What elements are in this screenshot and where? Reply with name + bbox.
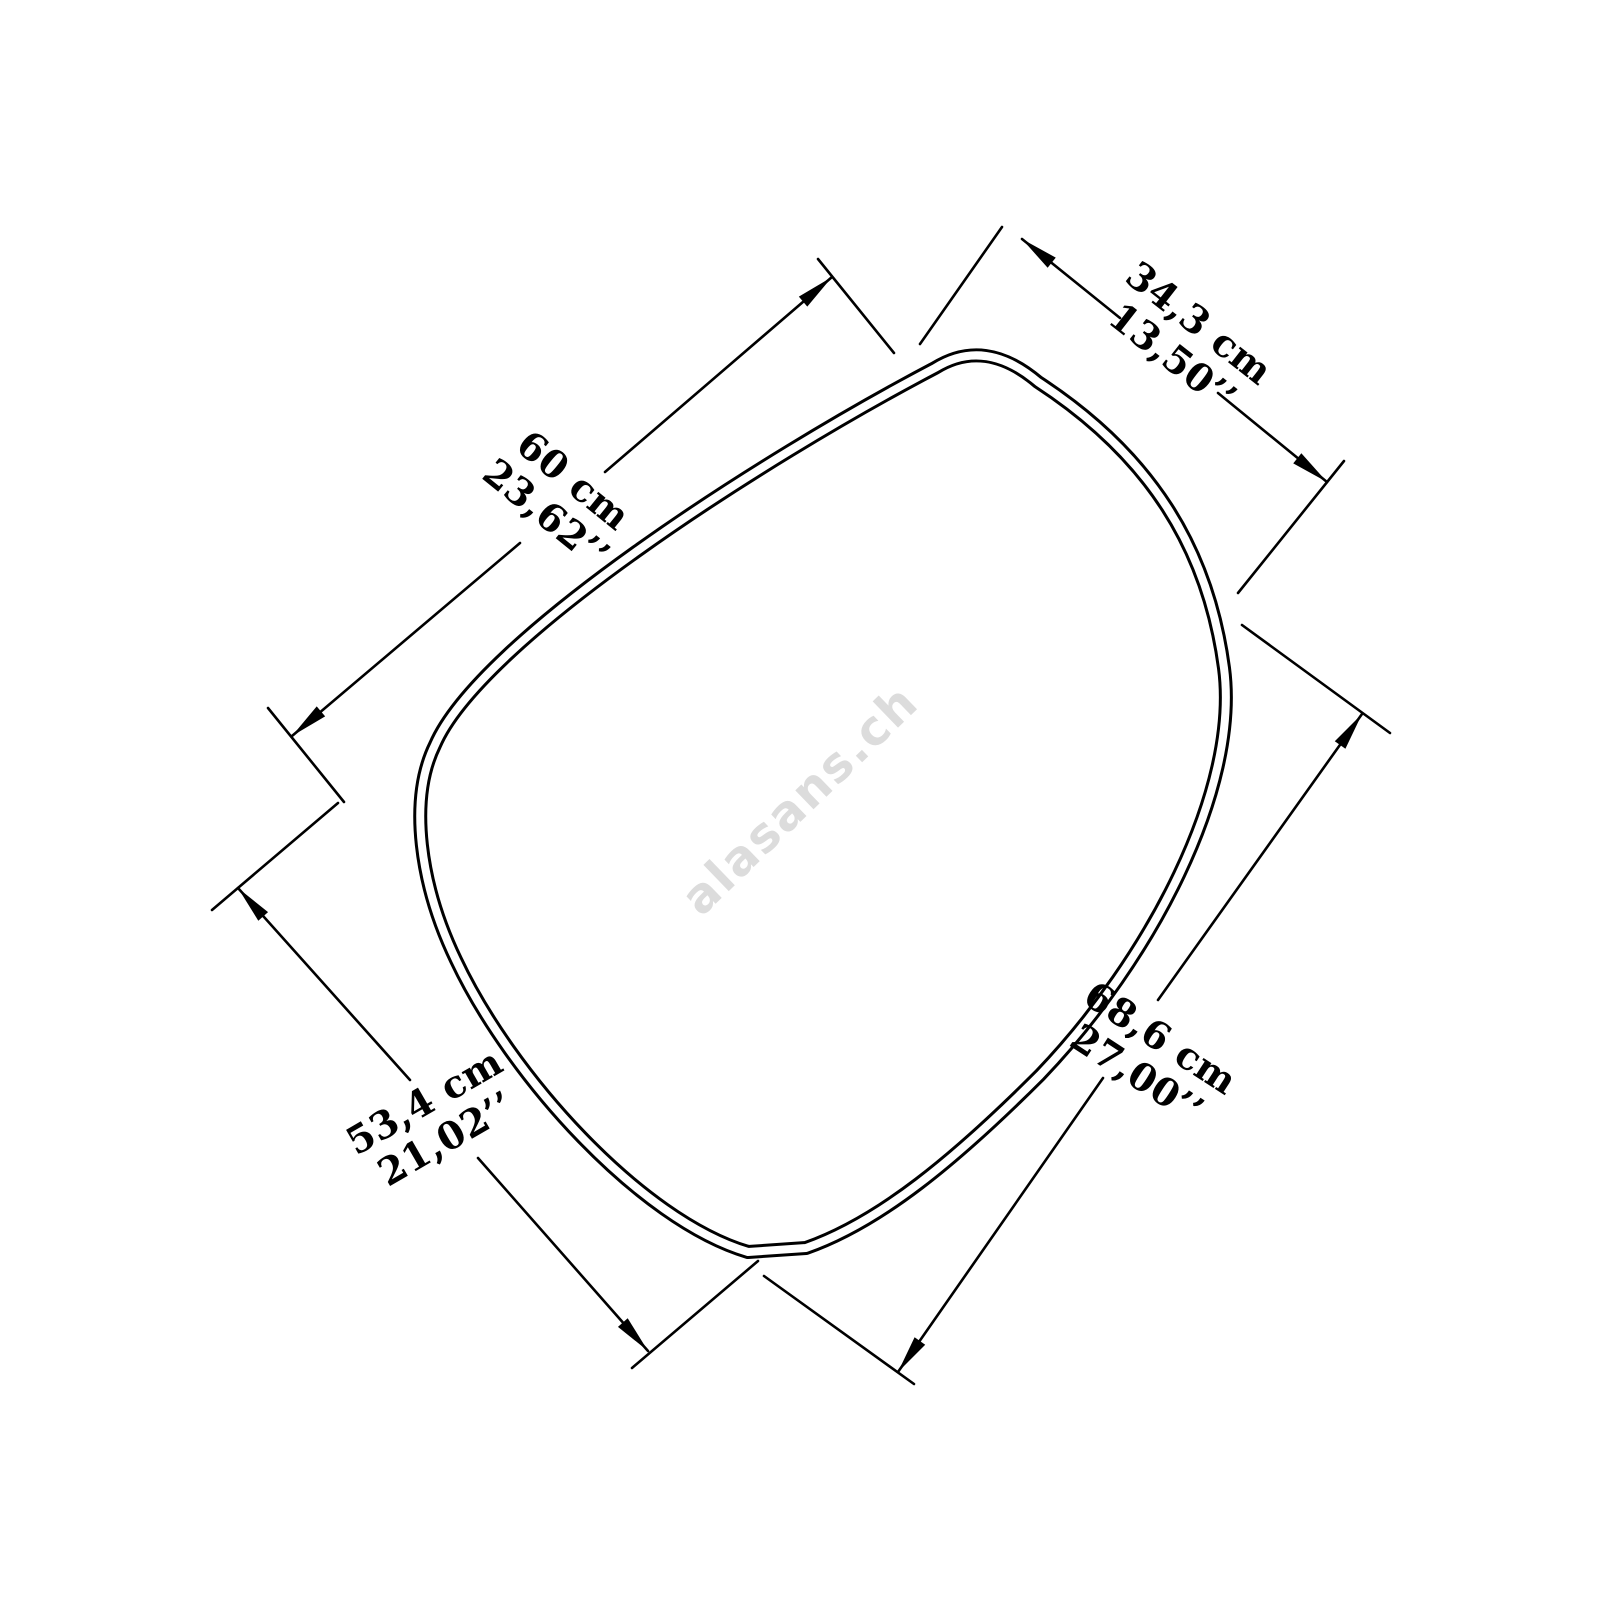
arrowhead [893, 1337, 926, 1376]
witness-line [764, 1276, 914, 1384]
dimension-line [292, 543, 520, 736]
dimension-drawing: 60 cm 23,62’’ 34,3 cm 13,50’’ 68,6 cm 27… [0, 0, 1600, 1600]
dimension-line [238, 888, 410, 1080]
witness-line [920, 227, 1002, 344]
witness-line [1242, 625, 1390, 733]
witness-line [212, 803, 338, 910]
witness-line [818, 259, 894, 353]
witness-line [1238, 461, 1344, 593]
dimension-line [478, 1158, 648, 1351]
witness-line [632, 1261, 758, 1368]
arrowhead [1335, 710, 1368, 749]
